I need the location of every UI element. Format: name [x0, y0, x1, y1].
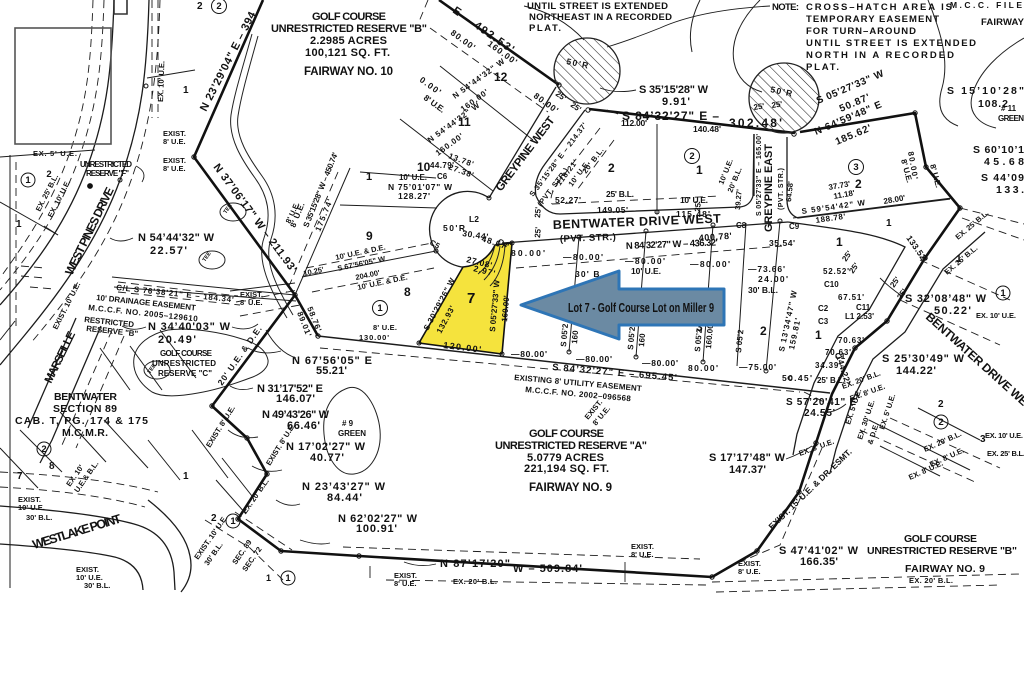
svg-text:1: 1	[266, 573, 271, 583]
svg-text:1: 1	[1000, 288, 1006, 299]
svg-text:GOLF COURSE: GOLF COURSE	[312, 11, 386, 23]
svg-text:1: 1	[16, 219, 22, 230]
svg-text:1: 1	[815, 328, 822, 342]
svg-text:24.55': 24.55'	[804, 408, 835, 419]
svg-text:EX. 20' B.L.: EX. 20' B.L.	[909, 576, 953, 585]
svg-text:8' U.E.: 8' U.E.	[394, 579, 417, 588]
svg-text:7: 7	[17, 471, 23, 482]
svg-text:C10: C10	[824, 280, 839, 289]
svg-text:140.48': 140.48'	[693, 124, 721, 134]
svg-text:2: 2	[216, 1, 221, 12]
svg-text:—80.00': —80.00'	[576, 354, 612, 364]
svg-text:160: 160	[637, 333, 647, 348]
svg-text:10' U.E.: 10' U.E.	[631, 266, 661, 276]
svg-text:L2: L2	[469, 214, 479, 224]
svg-text:144.22': 144.22'	[896, 365, 936, 377]
svg-text:SECTION 89: SECTION 89	[53, 403, 117, 415]
svg-text:NOTE:: NOTE:	[772, 2, 799, 13]
svg-text:166.35': 166.35'	[800, 556, 838, 568]
svg-text:2: 2	[855, 177, 862, 191]
svg-text:1: 1	[183, 85, 189, 96]
svg-text:84.44': 84.44'	[327, 492, 362, 504]
svg-text:7: 7	[467, 290, 475, 307]
svg-text:PLAT.: PLAT.	[806, 62, 839, 73]
svg-text:NORTHEAST IN A RECORDED: NORTHEAST IN A RECORDED	[529, 12, 672, 23]
svg-text:24.00': 24.00'	[758, 274, 788, 284]
svg-text:C6: C6	[437, 172, 448, 181]
svg-text:1: 1	[886, 218, 892, 229]
svg-text:221,194 SQ. FT.: 221,194 SQ. FT.	[524, 463, 609, 475]
svg-text:—75.00': —75.00'	[739, 362, 776, 372]
svg-text:BENTWATER: BENTWATER	[54, 391, 117, 403]
svg-text:C9: C9	[789, 222, 800, 231]
svg-text:2.2985 ACRES: 2.2985 ACRES	[310, 35, 387, 47]
svg-text:108.2: 108.2	[978, 98, 1008, 110]
svg-text:L1 2.53': L1 2.53'	[845, 312, 874, 321]
svg-text:2: 2	[689, 151, 694, 162]
svg-text:8' U.E.: 8' U.E.	[631, 550, 654, 559]
svg-text:1: 1	[836, 235, 843, 249]
svg-text:(PVT. STR.): (PVT. STR.)	[778, 168, 785, 210]
svg-text:10' U.E.: 10' U.E.	[399, 173, 427, 182]
svg-text:UNRESTRICTED: UNRESTRICTED	[80, 160, 132, 169]
svg-text:1: 1	[377, 303, 383, 314]
svg-text:8' U.E.: 8' U.E.	[738, 567, 761, 576]
svg-text:25': 25'	[771, 100, 783, 110]
svg-text:1: 1	[230, 516, 236, 527]
svg-text:2: 2	[608, 161, 615, 175]
svg-text:UNTIL STREET IS EXTENDED: UNTIL STREET IS EXTENDED	[806, 38, 976, 49]
svg-text:S 17’17’48" W: S 17’17’48" W	[709, 452, 786, 464]
svg-text:FAIRWAY NO. 9: FAIRWAY NO. 9	[529, 482, 612, 494]
svg-text:EX. 25' B.L.: EX. 25' B.L.	[987, 449, 1024, 458]
svg-text:(PVT. STR.): (PVT. STR.)	[560, 232, 616, 245]
svg-text:40.77': 40.77'	[310, 452, 344, 464]
svg-text:1: 1	[285, 573, 291, 584]
svg-text:UNRESTRICTED RESERVE "B": UNRESTRICTED RESERVE "B"	[271, 23, 427, 35]
svg-text:—80.00': —80.00'	[511, 349, 547, 359]
svg-text:9.91': 9.91'	[662, 96, 690, 108]
svg-text:52.52': 52.52'	[823, 267, 849, 276]
svg-text:UNRESTRICTED RESERVE "B": UNRESTRICTED RESERVE "B"	[867, 545, 1017, 557]
svg-text:1: 1	[696, 163, 703, 177]
svg-text:EX. 10' U.E.: EX. 10' U.E.	[976, 311, 1016, 320]
svg-text:2: 2	[760, 324, 767, 338]
svg-text:25': 25'	[693, 201, 703, 213]
svg-text:N 87’17'20": N 87’17'20"	[440, 558, 510, 570]
svg-text:C3: C3	[818, 317, 829, 326]
svg-text:8: 8	[404, 285, 411, 299]
svg-text:1: 1	[183, 471, 189, 482]
svg-text:—80.00': —80.00'	[563, 252, 603, 262]
svg-text:1: 1	[25, 175, 31, 186]
svg-text:Lot 7 - Golf Course Lot on Mil: Lot 7 - Golf Course Lot on Miller 9	[568, 301, 714, 315]
svg-text:GREEN: GREEN	[998, 114, 1024, 123]
svg-text:N 34’40'03" W: N 34’40'03" W	[148, 321, 231, 333]
svg-text:FAIRWAY NO. 10: FAIRWAY NO. 10	[304, 66, 393, 78]
svg-text:30' B.L.: 30' B.L.	[26, 513, 52, 522]
svg-text:35.54': 35.54'	[769, 238, 795, 248]
svg-text:3: 3	[853, 162, 858, 173]
svg-text:C11: C11	[856, 303, 871, 312]
svg-text:302.48': 302.48'	[729, 116, 782, 130]
svg-text:25': 25'	[533, 227, 543, 239]
svg-text:S 35’15'28" W: S 35’15'28" W	[639, 84, 709, 96]
svg-text:2: 2	[938, 417, 943, 428]
svg-text:S 15’10’28": S 15’10’28"	[947, 85, 1024, 97]
svg-text:EX. 10' U.E.: EX. 10' U.E.	[985, 431, 1023, 440]
svg-text:—80.00': —80.00'	[625, 256, 665, 266]
svg-text:PLAT.: PLAT.	[529, 23, 561, 34]
svg-text:EX. 20' B.L.: EX. 20' B.L.	[453, 577, 497, 586]
svg-text:S 05’27'33" E – 165.00': S 05’27'33" E – 165.00'	[756, 134, 763, 216]
svg-text:—73.66': —73.66'	[748, 264, 785, 274]
svg-text:GREEN: GREEN	[338, 429, 366, 438]
svg-text:8' U.E.: 8' U.E.	[240, 298, 263, 307]
svg-text:C2: C2	[818, 304, 829, 313]
svg-text:W – 509.84': W – 509.84'	[513, 563, 582, 575]
svg-text:M.C.M.R.: M.C.M.R.	[62, 427, 108, 439]
svg-text:UNTIL STREET IS EXTENDED: UNTIL STREET IS EXTENDED	[527, 1, 668, 12]
svg-text:S 32’08’48" W: S 32’08’48" W	[905, 293, 987, 305]
svg-text:# 9: # 9	[342, 419, 354, 428]
svg-text:UNRESTRICTED RESERVE "A": UNRESTRICTED RESERVE "A"	[495, 440, 647, 452]
svg-text:FOR TURN–AROUND: FOR TURN–AROUND	[806, 26, 916, 37]
svg-text:TEMPORARY EASEMENT: TEMPORARY EASEMENT	[806, 14, 939, 25]
svg-text:149.05': 149.05'	[597, 205, 628, 215]
svg-text:12: 12	[494, 70, 508, 84]
svg-text:67.51': 67.51'	[838, 293, 864, 302]
svg-text:2: 2	[41, 444, 46, 455]
svg-text:GOLF COURSE: GOLF COURSE	[904, 533, 977, 545]
svg-text:39.27': 39.27'	[733, 189, 744, 210]
svg-text:FAIRWAY: FAIRWAY	[981, 17, 1024, 28]
svg-text:2: 2	[938, 399, 944, 410]
svg-text:EX. 10' U.E.: EX. 10' U.E.	[156, 61, 166, 102]
svg-text:25': 25'	[753, 102, 765, 112]
svg-text:8' U.E.: 8' U.E.	[373, 323, 397, 332]
svg-text:—80.00': —80.00'	[642, 358, 678, 368]
svg-text:30' B.L.: 30' B.L.	[84, 581, 110, 590]
svg-text:M.C.C. FILE: M.C.C. FILE	[950, 0, 1022, 10]
svg-text:100,121 SQ. FT.: 100,121 SQ. FT.	[305, 47, 390, 59]
svg-text:128.27': 128.27'	[398, 191, 430, 201]
svg-text:N 54’44'32" W: N 54’44'32" W	[138, 232, 215, 244]
svg-text:25' B.L.: 25' B.L.	[606, 189, 634, 199]
svg-text:70.63': 70.63'	[838, 336, 864, 345]
svg-text:EX. 5' U.E.: EX. 5' U.E.	[33, 149, 77, 158]
svg-text:C8: C8	[736, 221, 747, 230]
svg-text:GREYPINE EAST: GREYPINE EAST	[763, 144, 775, 232]
svg-text:1: 1	[366, 171, 372, 183]
svg-text:RESERVE "C": RESERVE "C"	[158, 369, 212, 378]
svg-text:—80.00': —80.00'	[690, 259, 730, 269]
svg-text:50.45': 50.45'	[782, 373, 812, 383]
svg-text:8' U.E.: 8' U.E.	[163, 164, 186, 173]
svg-text:22.57': 22.57'	[150, 245, 187, 257]
svg-text:160: 160	[570, 330, 580, 345]
svg-text:GOLF COURSE: GOLF COURSE	[160, 349, 213, 358]
svg-text:100.91': 100.91'	[356, 523, 397, 535]
svg-text:44.79': 44.79'	[430, 161, 454, 170]
svg-text:9: 9	[366, 229, 373, 243]
svg-text:2: 2	[197, 1, 203, 12]
svg-text:UNRESTRICTED: UNRESTRICTED	[152, 359, 216, 368]
svg-text:S 44’09: S 44’09	[981, 172, 1024, 184]
svg-text:GOLF COURSE: GOLF COURSE	[529, 428, 604, 440]
svg-text:S 60’10’1: S 60’10’1	[973, 144, 1024, 156]
svg-text:20.49': 20.49'	[158, 334, 196, 346]
svg-text:10' U.E.: 10' U.E.	[18, 503, 45, 512]
svg-text:RESERVE "F": RESERVE "F"	[86, 169, 129, 178]
svg-text:146.07': 146.07'	[276, 393, 315, 405]
svg-text:52.27': 52.27'	[555, 195, 581, 205]
svg-text:NORTH IN A RECORDED: NORTH IN A RECORDED	[806, 50, 954, 61]
svg-text:147.37': 147.37'	[729, 464, 766, 476]
svg-text:FAIRWAY NO. 9: FAIRWAY NO. 9	[905, 563, 985, 575]
svg-text:55.21': 55.21'	[316, 365, 347, 377]
svg-text:S 25’30’49" W: S 25’30’49" W	[882, 353, 965, 365]
svg-text:8: 8	[49, 461, 55, 472]
svg-text:S 57’20'41" E: S 57’20'41" E	[786, 397, 856, 408]
svg-text:112.00': 112.00'	[621, 118, 647, 128]
svg-text:8' U.E.: 8' U.E.	[163, 137, 186, 146]
svg-text:130.00': 130.00'	[359, 333, 389, 342]
svg-text:30' B.L.: 30' B.L.	[748, 285, 778, 295]
svg-text:10: 10	[417, 160, 431, 174]
svg-text:25': 25'	[533, 207, 543, 219]
svg-text:CAB. T, PG. 174 & 175: CAB. T, PG. 174 & 175	[15, 415, 148, 427]
